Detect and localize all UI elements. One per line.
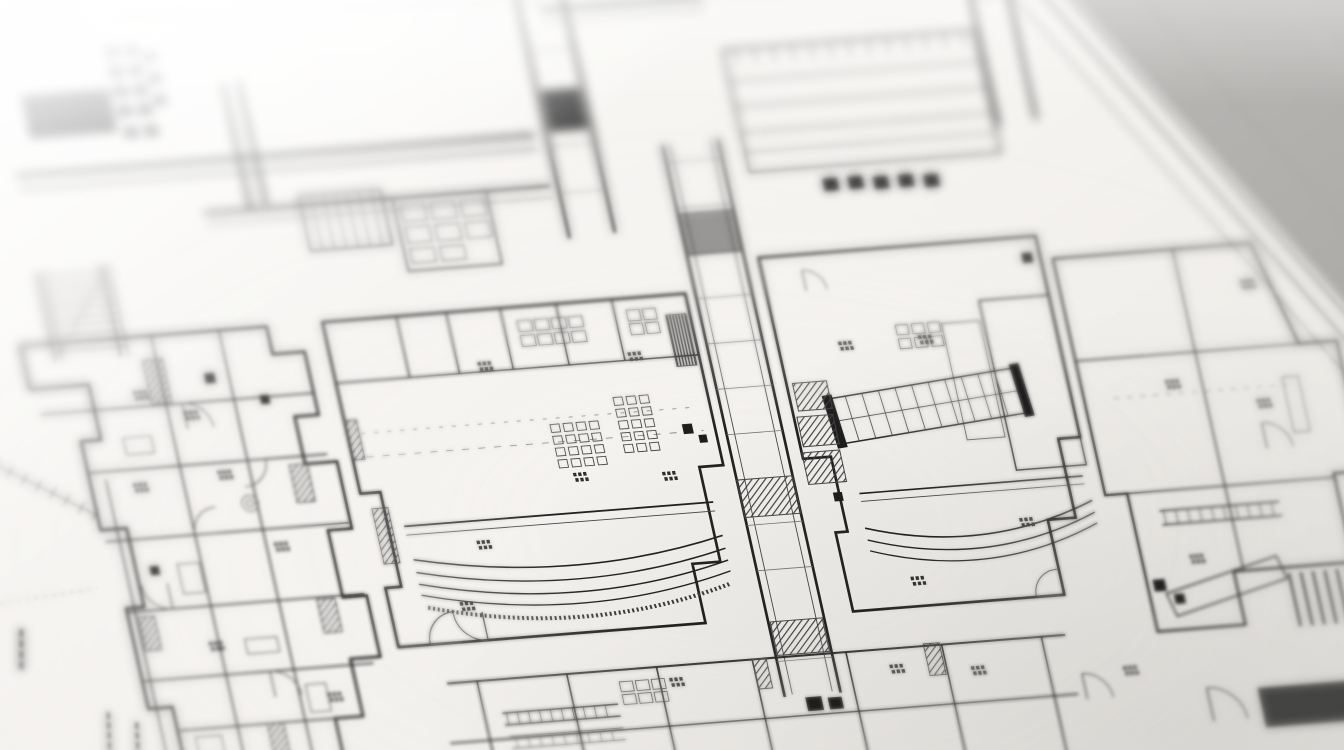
focus-layer-sharp [0, 0, 1344, 750]
paper-sheet [0, 0, 1344, 750]
floor-plan-sheet [0, 0, 1344, 750]
dark-filled-block [20, 88, 117, 138]
photo-of-floor-plan [0, 0, 1344, 750]
scene-host [0, 0, 1344, 750]
